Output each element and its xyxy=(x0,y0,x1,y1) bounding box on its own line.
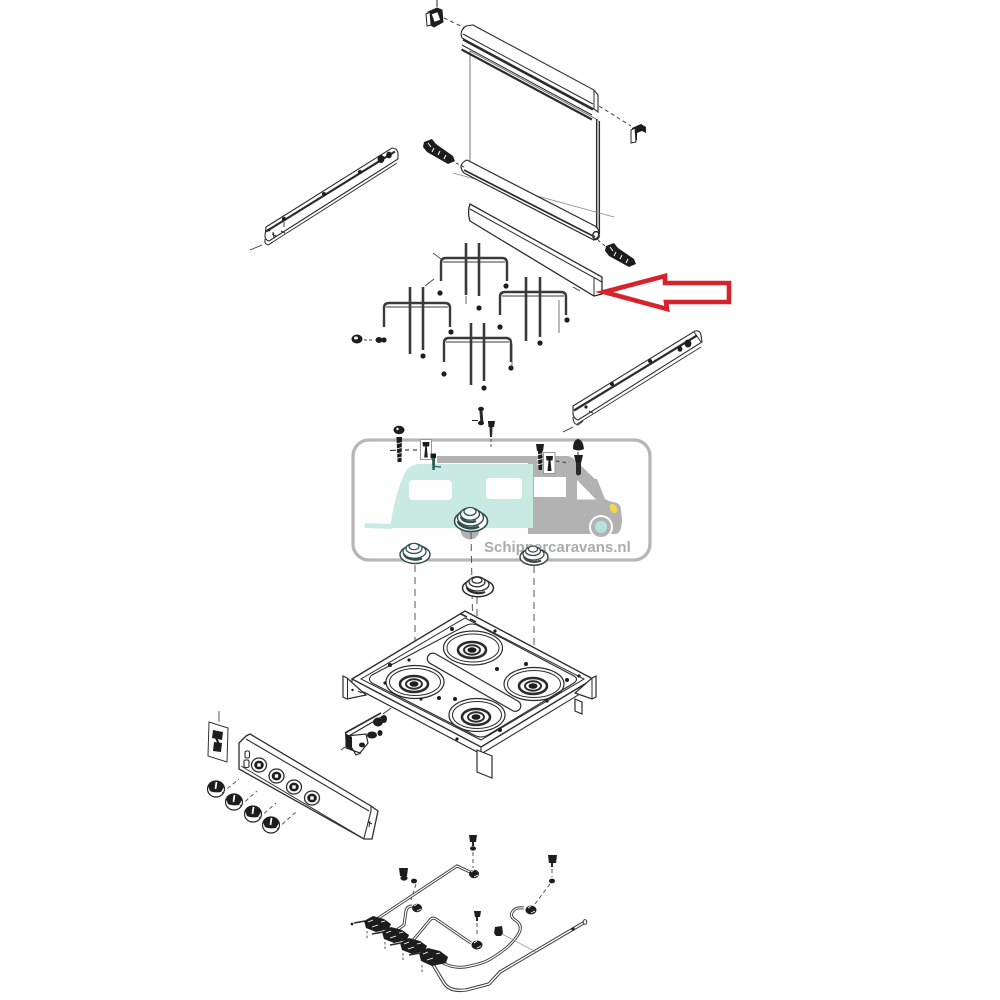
svg-text:Schippercaravans.nl: Schippercaravans.nl xyxy=(484,539,631,556)
